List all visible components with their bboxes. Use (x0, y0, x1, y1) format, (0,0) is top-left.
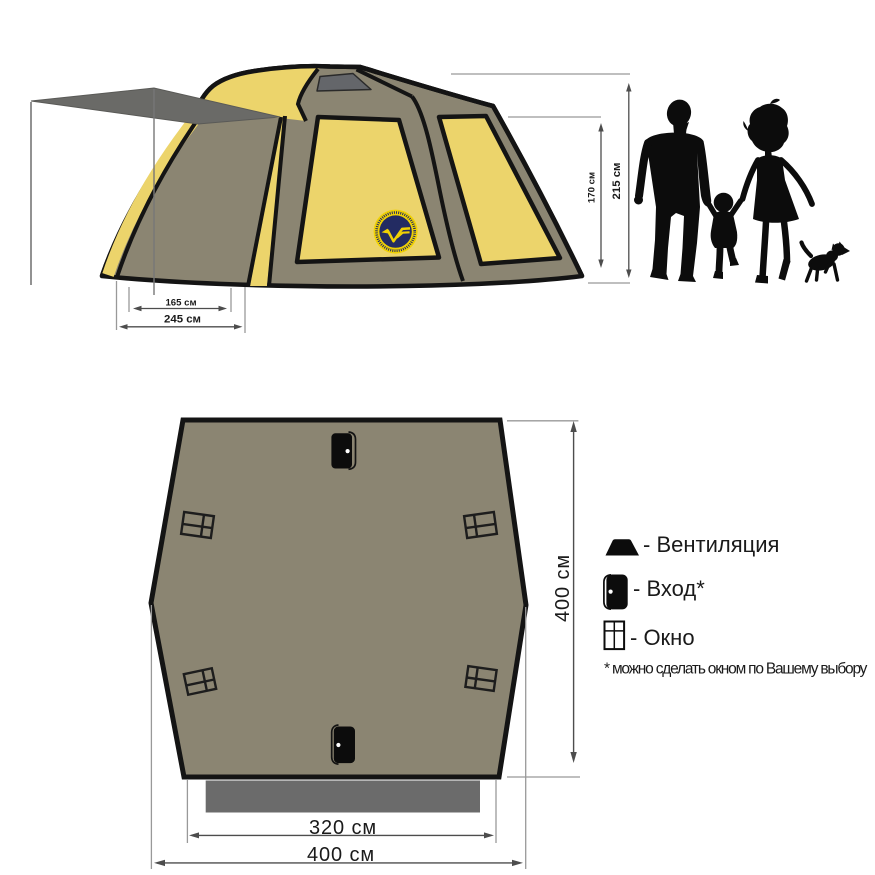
svg-text:165 см: 165 см (165, 298, 196, 309)
svg-text:215 см: 215 см (611, 163, 623, 200)
svg-text:400 см: 400 см (307, 844, 375, 866)
svg-text:- Окно: - Окно (630, 625, 695, 650)
svg-text:400 см: 400 см (552, 554, 574, 622)
svg-text:320 см: 320 см (309, 817, 377, 839)
svg-text:- Вход*: - Вход* (633, 576, 705, 601)
svg-text:245 см: 245 см (164, 314, 201, 326)
svg-text:170 см: 170 см (587, 172, 598, 203)
svg-text:* можно сделать окном по Вашем: * можно сделать окном по Вашему выбору (604, 661, 868, 678)
svg-text:- Вентиляция: - Вентиляция (643, 532, 779, 557)
